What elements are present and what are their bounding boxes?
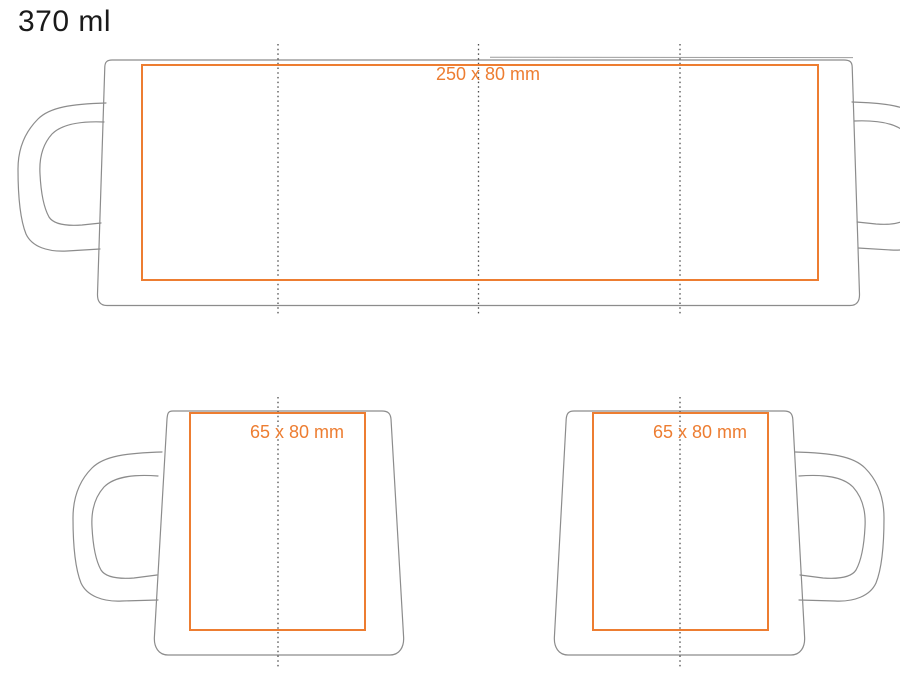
wrap-left-handle-outer: [18, 103, 106, 251]
left-mug-handle-outer: [73, 452, 162, 601]
wrap-print-area-rect: [142, 65, 818, 280]
wrap-print-area-label: 250 x 80 mm: [436, 64, 540, 85]
right-mug-print-area-rect: [593, 413, 768, 630]
wrap-right-handle-inner: [854, 121, 900, 225]
right-mug-handle-inner: [799, 475, 865, 578]
mug-template-drawing: [0, 0, 900, 683]
mug-print-template-diagram: 370 ml: [0, 0, 900, 683]
wrap-right-handle-outer: [852, 102, 900, 250]
left-mug-handle-inner: [92, 475, 158, 578]
left-mug-view: [73, 397, 404, 668]
left-mug-print-area-rect: [190, 413, 365, 630]
left-mug-print-area-label: 65 x 80 mm: [250, 422, 344, 443]
wrap-left-handle-inner: [40, 122, 104, 226]
left-mug-body-outline: [154, 411, 403, 655]
right-mug-handle-outer: [795, 452, 884, 601]
right-mug-print-area-label: 65 x 80 mm: [653, 422, 747, 443]
